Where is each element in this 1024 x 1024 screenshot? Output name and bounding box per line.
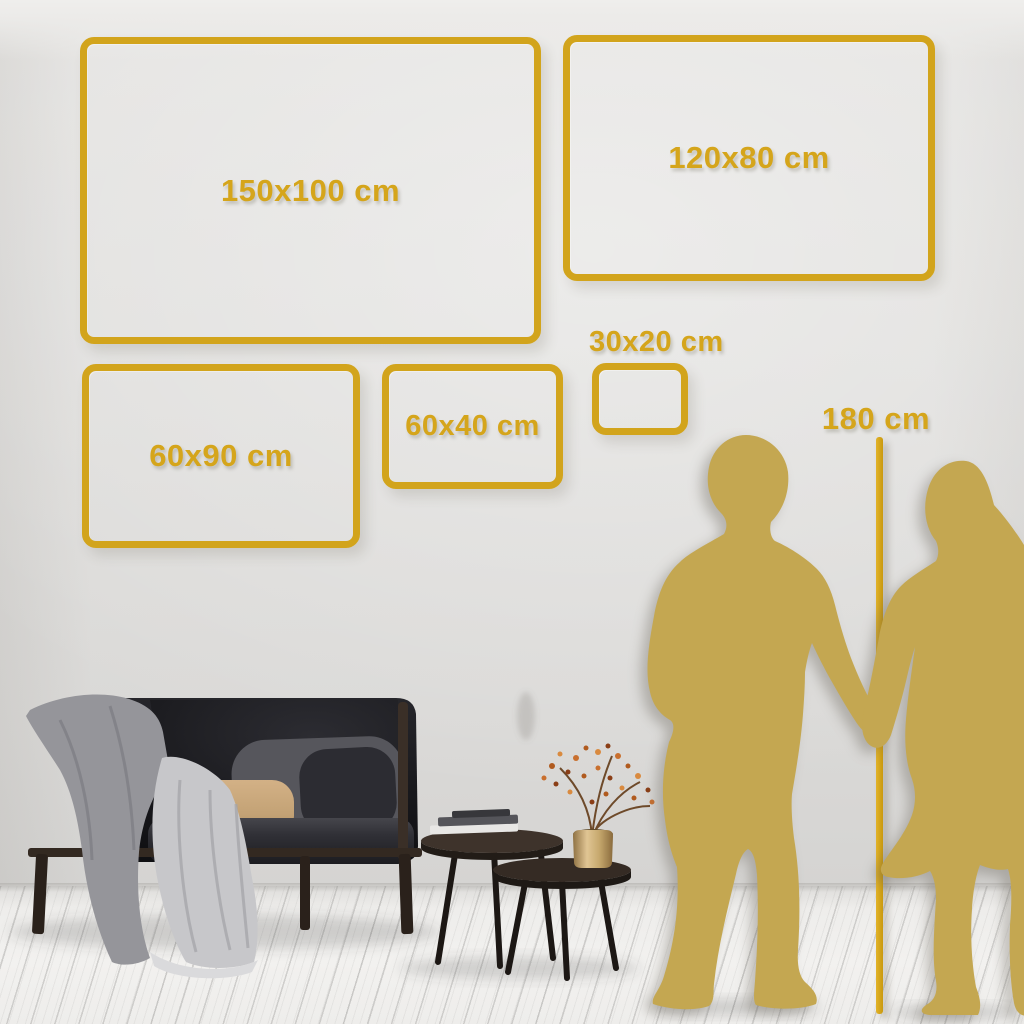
size-label-60x40: 60x40 cm [405,410,540,443]
wood-floor [0,886,1024,1024]
size-frame-120x80: 120x80 cm [563,35,935,281]
size-label-60x90: 60x90 cm [149,438,293,474]
size-guide-scene: 150x100 cm 120x80 cm 60x90 cm 60x40 cm 3… [0,0,1024,1024]
size-frame-30x20 [592,363,688,435]
height-marker-label: 180 cm [815,401,937,437]
size-label-150x100: 150x100 cm [221,173,400,209]
height-ruler-line [876,437,883,1014]
size-frame-60x90: 60x90 cm [82,364,360,548]
size-label-120x80: 120x80 cm [668,140,829,176]
size-frame-60x40: 60x40 cm [382,364,563,489]
size-label-30x20: 30x20 cm [589,326,724,359]
size-frame-150x100: 150x100 cm [80,37,541,344]
